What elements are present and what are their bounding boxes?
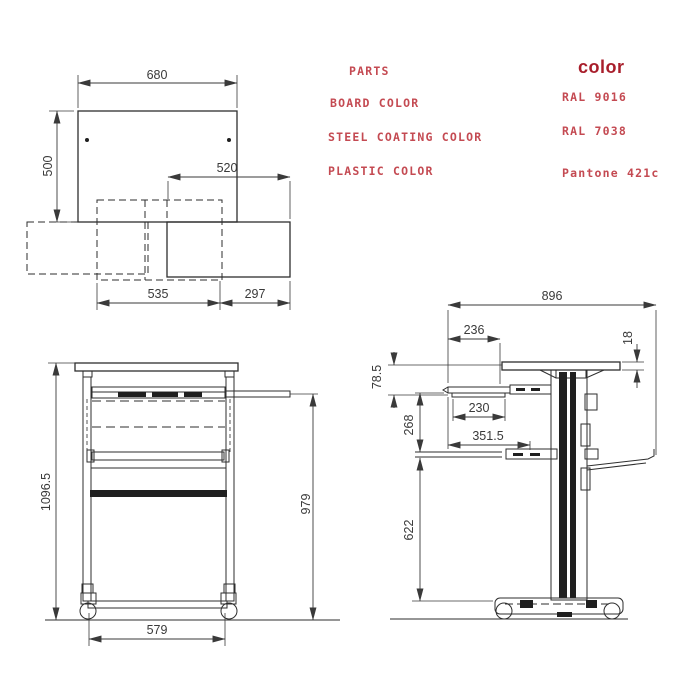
dim-board-depth: 500 <box>41 156 55 177</box>
side-caster-front <box>496 603 512 619</box>
hidden-tray-outline <box>27 222 148 274</box>
front-left-column <box>83 377 91 601</box>
side-view: 896 236 18 78.5 230 <box>370 289 656 619</box>
dim-tray-height: 979 <box>299 494 313 515</box>
color-header: color <box>578 57 625 78</box>
color-value-board: RAL 9016 <box>562 90 627 104</box>
technical-drawing-sheet: 680 500 520 535 297 <box>0 0 700 700</box>
parts-header: PARTS <box>349 64 390 78</box>
dim-overall-depth: 896 <box>542 289 563 303</box>
side-caster-back <box>604 603 620 619</box>
part-label-plastic: PLASTIC COLOR <box>328 164 434 178</box>
front-mid-shelf <box>92 452 224 460</box>
dim-overall-height: 1096.5 <box>39 473 53 511</box>
top-view: 680 500 520 535 297 <box>27 68 290 310</box>
side-column <box>551 370 587 600</box>
dim-tray-to-shelf: 268 <box>402 415 416 436</box>
dim-board-to-tray-drop: 78.5 <box>370 365 384 389</box>
side-shelf-outline <box>167 222 290 277</box>
color-value-plastic: Pantone 421c <box>562 166 659 180</box>
front-base-bar <box>88 601 227 608</box>
part-label-steel: STEEL COATING COLOR <box>328 130 482 144</box>
dim-tray-width: 520 <box>217 161 238 175</box>
dim-tray-extension: 236 <box>464 323 485 337</box>
dim-base-width: 579 <box>147 623 168 637</box>
part-label-board: BOARD COLOR <box>330 96 419 110</box>
front-lower-shelf <box>90 490 227 497</box>
dim-board-width: 680 <box>147 68 168 82</box>
dim-side-extension: 297 <box>245 287 266 301</box>
tray-reference-bar <box>225 391 290 397</box>
side-keyboard-tray <box>448 387 510 393</box>
front-top-board <box>75 363 238 371</box>
dim-board-thickness: 18 <box>621 331 635 345</box>
front-view: 1096.5 979 579 <box>39 363 340 646</box>
hidden-shelf-outline <box>97 200 222 280</box>
dim-shelf-to-base: 622 <box>402 520 416 541</box>
dim-tray-depth: 230 <box>469 401 490 415</box>
side-top-board <box>502 362 620 370</box>
front-right-column <box>226 377 234 601</box>
screw-hole-left <box>85 138 89 142</box>
dim-shelf-width: 535 <box>148 287 169 301</box>
color-value-steel: RAL 7038 <box>562 124 627 138</box>
front-caster-right <box>221 603 237 619</box>
dim-shelf-depth: 351.5 <box>472 429 503 443</box>
screw-hole-right <box>227 138 231 142</box>
